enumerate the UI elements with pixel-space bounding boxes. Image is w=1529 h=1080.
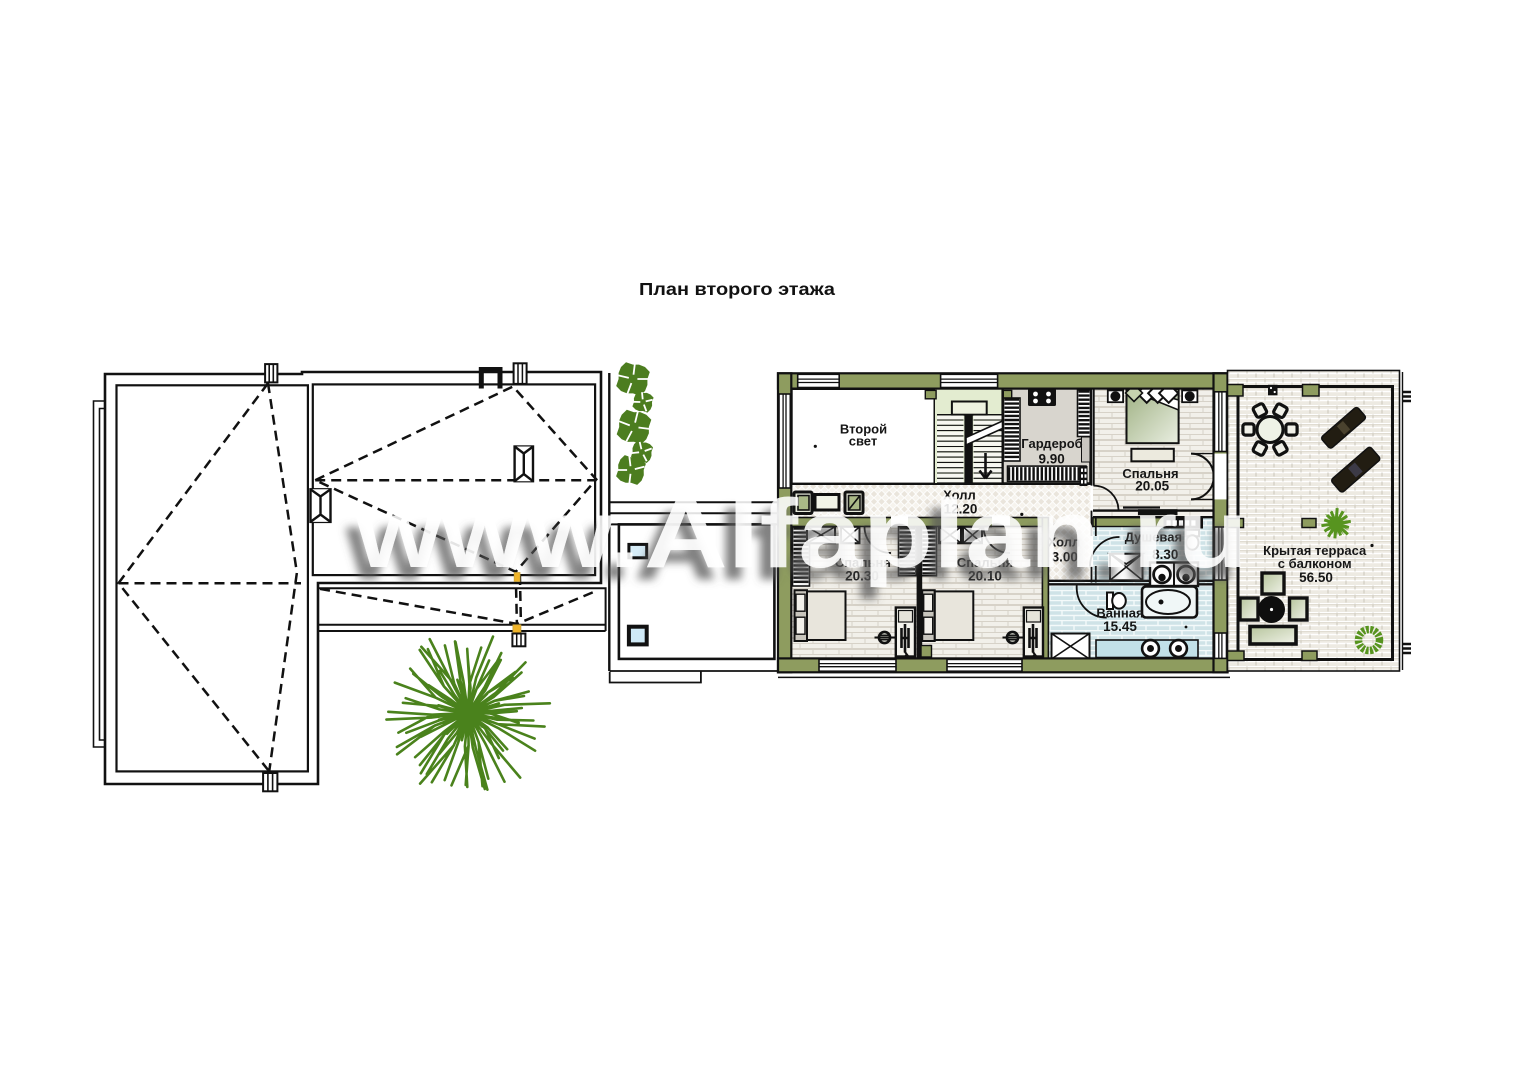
svg-text:56.50: 56.50: [1299, 570, 1333, 585]
svg-text:свет: свет: [849, 434, 877, 449]
svg-text:с балконом: с балконом: [1278, 556, 1352, 571]
svg-text:15.45: 15.45: [1103, 619, 1137, 634]
svg-text:www.Alfaplan.ru: www.Alfaplan.ru: [355, 479, 1248, 588]
svg-text:Гардероб: Гардероб: [1021, 436, 1082, 451]
svg-text:План второго этажа: План второго этажа: [639, 279, 835, 299]
svg-text:9.90: 9.90: [1038, 451, 1064, 466]
